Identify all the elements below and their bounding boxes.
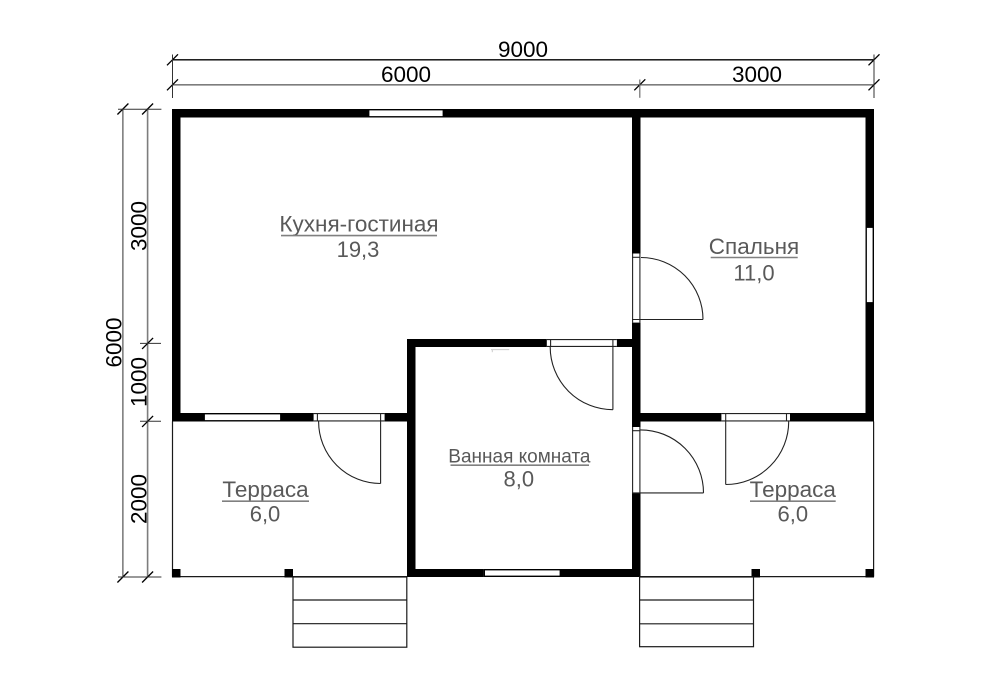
svg-text:8,0: 8,0 [504, 467, 535, 492]
svg-text:3000: 3000 [732, 62, 782, 87]
svg-text:1000: 1000 [126, 357, 151, 407]
svg-text:6,0: 6,0 [250, 502, 281, 527]
svg-text:Терраса: Терраса [750, 477, 837, 502]
svg-text:Кухня-гостиная: Кухня-гостиная [279, 212, 438, 237]
svg-text:Терраса: Терраса [222, 477, 309, 502]
svg-text:6000: 6000 [381, 62, 431, 87]
svg-text:9000: 9000 [498, 37, 548, 62]
svg-text:Ванная комната: Ванная комната [448, 446, 591, 467]
svg-text:11,0: 11,0 [733, 260, 774, 285]
svg-text:6,0: 6,0 [778, 502, 809, 527]
svg-text:3000: 3000 [126, 201, 151, 251]
svg-text:6000: 6000 [101, 317, 126, 367]
svg-text:2000: 2000 [126, 474, 151, 524]
svg-text:19,3: 19,3 [337, 237, 380, 262]
svg-text:Спальня: Спальня [709, 234, 799, 259]
